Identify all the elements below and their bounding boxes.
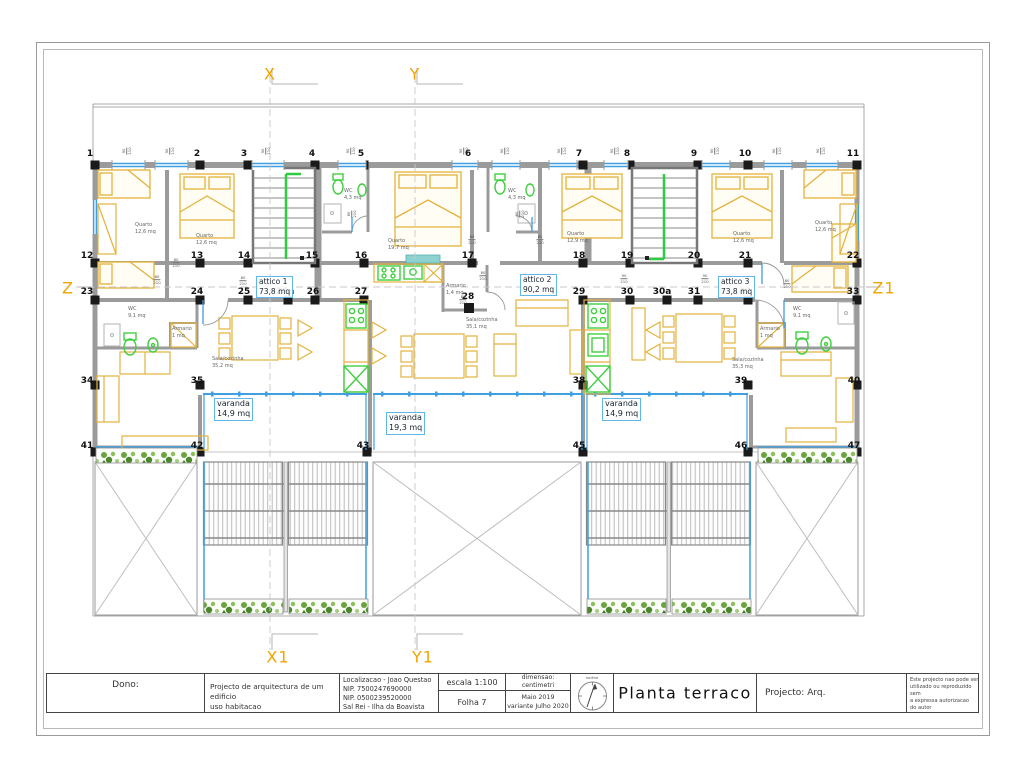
floor-plan-drawing <box>0 0 1024 768</box>
copyright-cell: Este projecto nao pode ser utilizado ou … <box>906 674 980 712</box>
owner-label: Dono: <box>47 680 204 690</box>
plan-canvas: 1234567891011121314151617181920212223242… <box>0 0 1024 768</box>
counter-strip <box>406 255 440 263</box>
project-description-cell: Projecto de arquitectura de um edificio … <box>204 674 339 712</box>
north-compass-icon <box>571 674 614 714</box>
sheet-number: Folha 7 <box>439 692 505 713</box>
title-block: Dono: Projecto de arquitectura de um edi… <box>46 673 979 713</box>
drawing-title-cell: Planta terraco <box>613 674 756 712</box>
location-cell: Localizacao - Joao Questao NIP. 75002476… <box>339 674 438 712</box>
owner-cell: Dono: <box>47 674 204 712</box>
dimension-unit: dimensao: centimetri <box>506 674 570 691</box>
architect-label: Projecto: Arq. <box>765 688 825 698</box>
drawing-sheet: 1234567891011121314151617181920212223242… <box>0 0 1024 768</box>
dimension-date-cell: dimensao: centimetri Maio 2019 variante … <box>505 674 570 712</box>
terrace-structures <box>95 462 858 615</box>
varanda-railings <box>96 392 857 451</box>
architect-cell: Projecto: Arq. <box>756 674 906 712</box>
furniture-beds <box>98 170 856 292</box>
north-cell: northe <box>570 674 613 712</box>
date-variant: Maio 2019 variante Julho 2020 <box>506 692 570 713</box>
location-details: Localizacao - Joao Questao NIP. 75002476… <box>343 676 431 712</box>
copyright-note: Este projecto nao pode ser utilizado ou … <box>910 677 980 711</box>
drawing-title: Planta terraco <box>614 684 756 703</box>
scale-label: escala 1:100 <box>439 674 505 691</box>
scale-cell: escala 1:100 Folha 7 <box>438 674 505 712</box>
project-description: Projecto de arquitectura de um edificio … <box>210 682 339 712</box>
furniture-living <box>97 300 836 450</box>
